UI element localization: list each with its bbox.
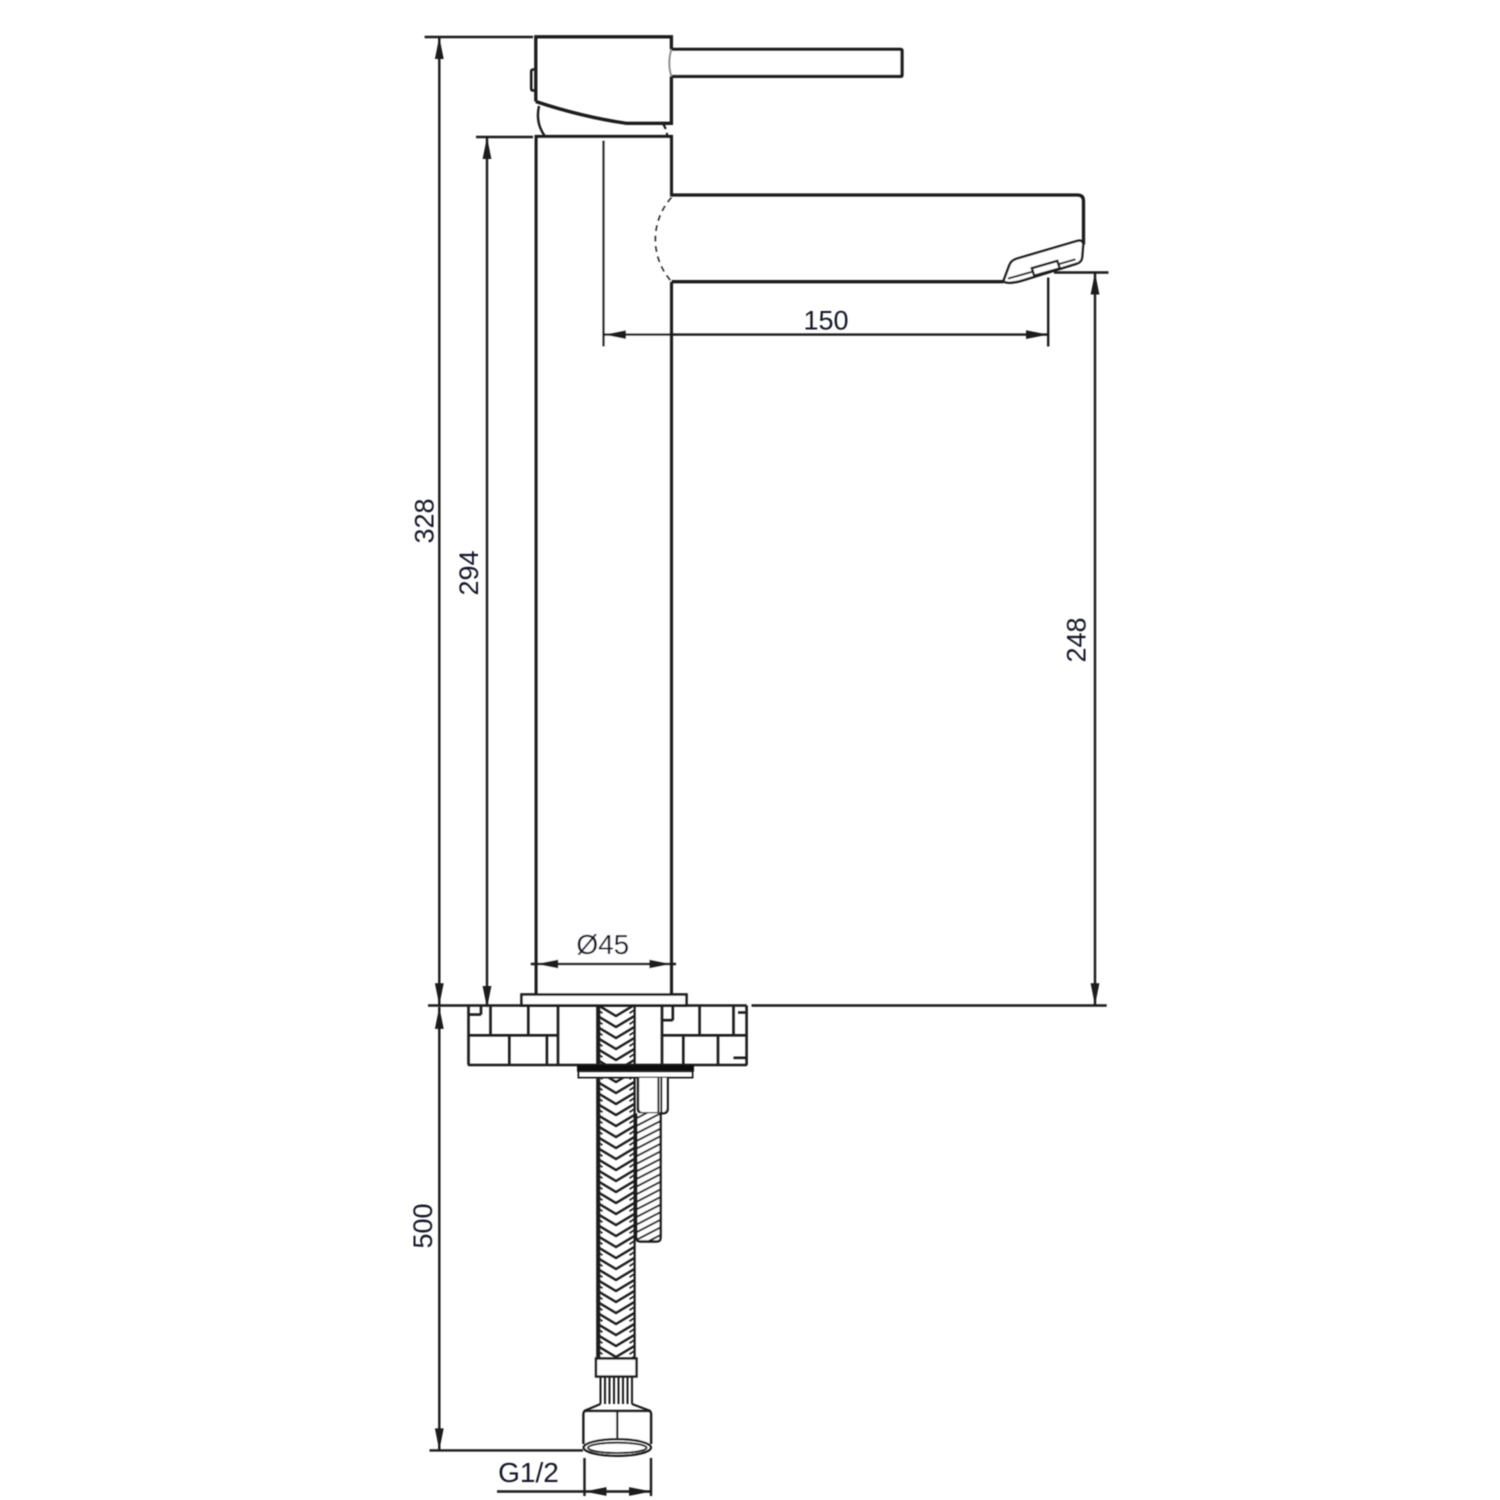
svg-text:248: 248 [1062,617,1092,662]
svg-text:Ø45: Ø45 [576,929,629,960]
svg-text:G1/2: G1/2 [498,1457,559,1488]
svg-text:294: 294 [454,550,484,595]
svg-text:150: 150 [803,306,848,336]
svg-text:500: 500 [408,1203,438,1248]
svg-text:328: 328 [410,498,440,543]
